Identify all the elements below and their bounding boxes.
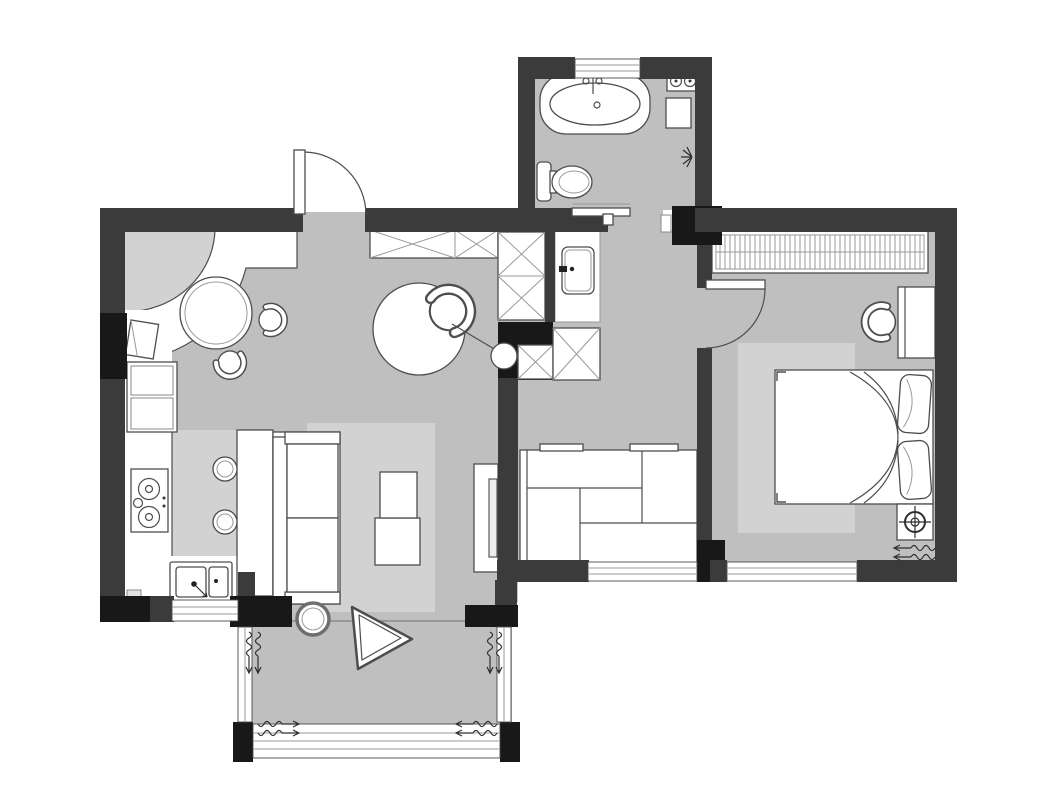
bedroom-bottom-wall-east	[857, 560, 957, 582]
bathroom-top-wall-west	[518, 57, 575, 79]
cabinet-handle	[540, 444, 583, 451]
floor-target-box	[897, 504, 933, 540]
balcony-se-column	[500, 722, 520, 762]
bar-stool	[213, 457, 237, 481]
door-jamb	[661, 215, 671, 232]
balcony-right-column	[465, 605, 518, 627]
round-side-table	[297, 603, 329, 635]
balcony-right-window	[497, 627, 511, 722]
pillow	[897, 374, 932, 434]
balcony-right-stub	[495, 580, 517, 607]
floor-lamp-head	[491, 343, 517, 369]
vanity-partition	[545, 228, 555, 322]
entry-x-cabinet-row	[370, 230, 498, 258]
cabinet-handle	[630, 444, 678, 451]
bedroom-bottom-wall-west	[710, 560, 727, 582]
bedroom-door-leaf	[706, 280, 765, 289]
balcony-left-column	[230, 596, 292, 627]
coffee-table-small	[380, 472, 417, 518]
tall-cabinet	[127, 362, 177, 432]
kitchen-sink	[170, 562, 232, 602]
kitchen-strip-floor	[172, 430, 237, 556]
living-bottom-wall	[497, 560, 589, 582]
bath-stool	[666, 98, 691, 128]
sliding-door-panel	[572, 208, 630, 216]
entry-door	[294, 150, 366, 214]
fridge	[126, 320, 159, 359]
double-bed	[775, 370, 933, 504]
sofa-cushion	[287, 518, 338, 592]
living-south-window	[588, 562, 697, 581]
right-wall	[935, 208, 957, 582]
bedroom-south-window	[727, 562, 857, 581]
bar-console	[237, 430, 273, 596]
cooktop	[131, 469, 168, 532]
left-wall	[100, 208, 125, 622]
nook-storage-cabinet	[520, 444, 697, 563]
wardrobe	[712, 231, 928, 273]
faucet-dot-icon	[570, 267, 574, 271]
entry-door-swing	[305, 152, 366, 214]
sofa-cushion	[287, 444, 338, 518]
bathroom-top-window	[575, 59, 640, 78]
kitchen-window	[172, 600, 238, 621]
top-wall-west	[100, 208, 303, 232]
cooktop-knob	[163, 497, 166, 500]
tv-partition-wall	[498, 378, 518, 562]
cooktop-knob	[163, 505, 166, 508]
bar-stool	[213, 510, 237, 534]
balcony-left-stub	[238, 572, 255, 598]
sliding-door-bracket	[603, 214, 613, 225]
coffee-table-large	[375, 518, 420, 565]
drain-icon	[214, 579, 218, 583]
bedroom-top-wall	[695, 208, 957, 232]
faucet-icon	[559, 266, 567, 272]
kitchen-corner-column	[100, 596, 150, 622]
desk	[898, 287, 935, 358]
entry-door-leaf	[294, 150, 305, 214]
bathtub	[540, 74, 650, 134]
pillow	[897, 440, 932, 500]
washbasin-vanity	[555, 230, 600, 322]
sofa-armrest	[285, 432, 340, 444]
left-wall-column	[100, 313, 127, 379]
sofa-back	[273, 437, 287, 599]
balcony-sw-column	[233, 722, 253, 762]
bedroom-west-wall-lower	[697, 348, 712, 542]
floor-plan-svg	[0, 0, 1060, 789]
tv-screen	[489, 479, 497, 557]
bathroom-west-wall	[518, 57, 535, 212]
entry-doorway-floor	[303, 212, 365, 232]
balcony-bottom-window	[253, 724, 500, 758]
entry-x-cabinet-column	[498, 232, 545, 320]
bathroom-east-wall	[695, 57, 712, 210]
sofa	[273, 432, 340, 604]
floor-plan-canvas	[0, 0, 1060, 789]
faucet-icon	[191, 581, 197, 587]
tv-unit	[474, 464, 498, 572]
balcony-left-window	[238, 627, 252, 722]
